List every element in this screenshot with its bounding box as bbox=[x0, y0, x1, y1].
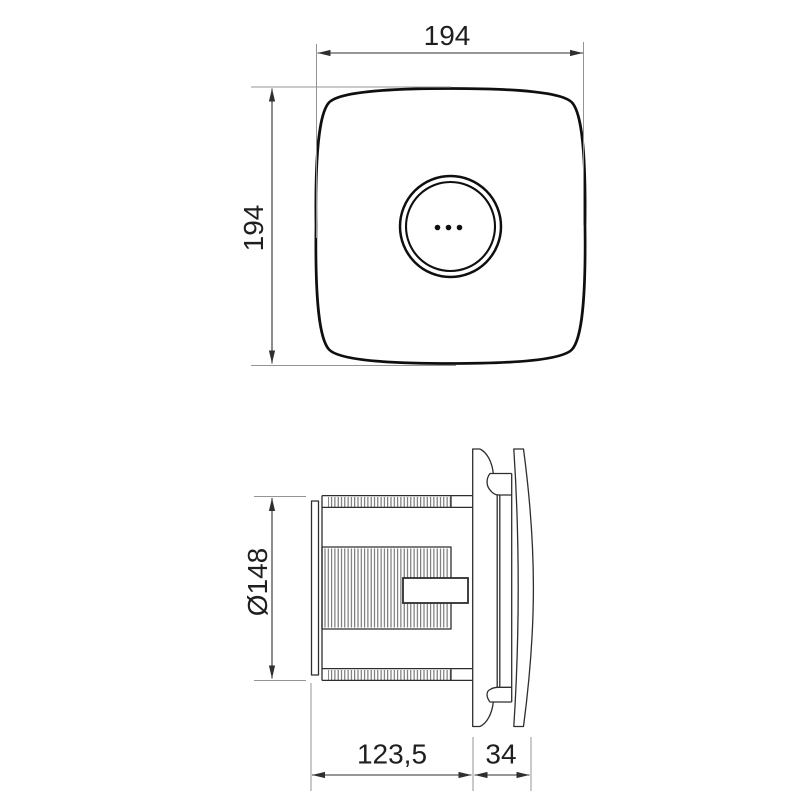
arrow-right-icon bbox=[459, 772, 472, 778]
body-depth-dim-label: 123,5 bbox=[357, 739, 427, 770]
height-dim-label: 194 bbox=[238, 205, 269, 252]
technical-drawing: 194 194 Ø148 bbox=[0, 0, 800, 800]
arrow-left-icon bbox=[475, 772, 488, 778]
side-view-dimensions: Ø148 123,5 34 bbox=[242, 497, 531, 792]
wall-flange bbox=[473, 449, 500, 727]
side-view bbox=[312, 449, 534, 727]
mounting-hook-bottom bbox=[487, 687, 512, 702]
extension-lines-front bbox=[251, 42, 584, 366]
arrow-right-icon bbox=[517, 772, 530, 778]
arrow-right-icon bbox=[570, 50, 583, 56]
clamp-block bbox=[403, 578, 468, 603]
front-view-dimensions: 194 194 bbox=[238, 20, 584, 366]
arrow-down-icon bbox=[269, 666, 275, 679]
front-cover-profile bbox=[514, 449, 534, 727]
mounting-hook-top bbox=[487, 474, 512, 496]
front-view bbox=[316, 89, 585, 364]
drawing-canvas: 194 194 Ø148 bbox=[0, 0, 800, 800]
diameter-dim-label: Ø148 bbox=[242, 548, 273, 617]
cover-depth-dim-label: 34 bbox=[485, 739, 516, 770]
arrow-left-icon bbox=[318, 50, 331, 56]
arrow-left-icon bbox=[312, 772, 325, 778]
arrow-up-icon bbox=[269, 498, 275, 511]
arrow-up-icon bbox=[269, 89, 275, 102]
duct-rib-band-bottom bbox=[328, 670, 451, 680]
width-dim-label: 194 bbox=[424, 20, 471, 51]
duct-rib-band-top bbox=[328, 497, 451, 507]
arrow-down-icon bbox=[269, 351, 275, 364]
back-plate bbox=[312, 501, 319, 675]
vent-dots bbox=[435, 225, 463, 231]
